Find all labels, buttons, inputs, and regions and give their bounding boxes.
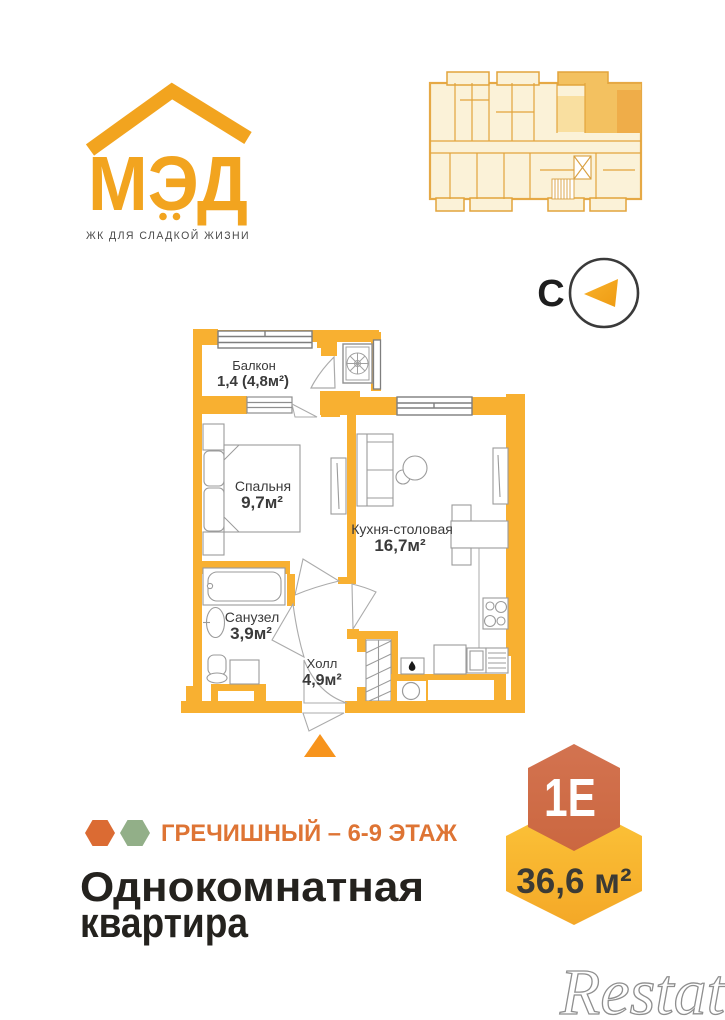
svg-text:Спальня: Спальня: [235, 478, 291, 494]
svg-text:ЖК ДЛЯ СЛАДКОЙ ЖИЗНИ: ЖК ДЛЯ СЛАДКОЙ ЖИЗНИ: [86, 229, 250, 242]
svg-text:МЭД: МЭД: [88, 141, 248, 227]
svg-text:4,9м²: 4,9м²: [302, 672, 341, 689]
svg-text:1Е: 1Е: [544, 768, 596, 828]
svg-text:С: С: [537, 273, 564, 315]
svg-text:Санузел: Санузел: [225, 609, 280, 625]
svg-text:9,7м²: 9,7м²: [241, 493, 283, 512]
svg-text:16,7м²: 16,7м²: [374, 536, 426, 555]
svg-text:Балкон: Балкон: [232, 358, 276, 373]
svg-text:Кухня-столовая: Кухня-столовая: [351, 521, 453, 537]
svg-text:1,4 (4,8м²): 1,4 (4,8м²): [217, 373, 289, 390]
svg-text:Restate: Restate: [559, 956, 725, 1020]
svg-text:ГРЕЧИШНЫЙ – 6-9 ЭТАЖ: ГРЕЧИШНЫЙ – 6-9 ЭТАЖ: [161, 819, 457, 847]
svg-text:3,9м²: 3,9м²: [230, 624, 272, 643]
svg-text:квартира: квартира: [80, 899, 249, 946]
svg-text:Холл: Холл: [307, 656, 338, 671]
svg-text:36,6 м²: 36,6 м²: [516, 862, 631, 901]
